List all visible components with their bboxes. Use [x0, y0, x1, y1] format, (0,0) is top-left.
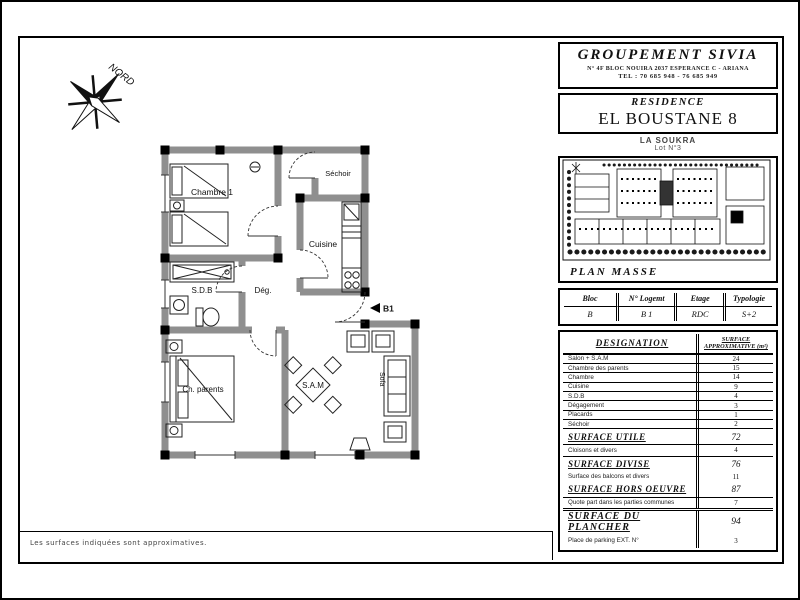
company-name: GROUPEMENT SIVIA — [560, 47, 776, 64]
surface-summary-row: SURFACE UTILE72 — [563, 429, 773, 445]
unit-value-logement: B 1 — [616, 307, 674, 322]
armchair-icon — [372, 331, 394, 352]
row-label: S.D.B — [563, 393, 696, 400]
row-label: Salon + S.A.M — [563, 355, 696, 362]
tv-icon — [350, 438, 370, 450]
surface-row: Cuisine9 — [563, 383, 773, 392]
unit-value-bloc: B — [564, 307, 616, 322]
surface-col-designation: DESIGNATION — [563, 338, 696, 348]
row-value: 2 — [696, 420, 773, 428]
room-label-ch-parents: Ch. parents — [182, 385, 223, 394]
row-value: 7 — [696, 498, 773, 508]
plan-masse-block: PLAN MASSE — [558, 156, 778, 283]
row-value: 94 — [696, 511, 773, 533]
company-phone: TEL : 70 685 948 - 76 685 949 — [560, 73, 776, 80]
unit-value-typologie: S+2 — [723, 307, 772, 322]
toilet-icon — [196, 308, 219, 326]
surface-summary-row: Cloisons et divers4 — [563, 445, 773, 456]
row-value: 1 — [696, 411, 773, 419]
row-value: 14 — [696, 373, 773, 381]
unit-header-typologie: Typologie — [723, 293, 772, 307]
location-block: LA SOUKRA Lot N°3 — [558, 136, 778, 152]
row-label: Chambre des parents — [563, 365, 696, 372]
row-label: Dégagement — [563, 402, 696, 409]
row-value: 11 — [696, 471, 773, 481]
surface-row: Chambre14 — [563, 373, 773, 382]
row-value: 4 — [696, 392, 773, 400]
room-label-sam: S.A.M — [302, 381, 324, 390]
row-value: 15 — [696, 364, 773, 372]
washbasin-icon — [170, 296, 188, 314]
drawing-sheet: NORD — [0, 0, 800, 600]
surface-row: S.D.B4 — [563, 392, 773, 401]
unit-value-etage: RDC — [674, 307, 723, 322]
room-label-sechoir: Séchoir — [325, 169, 351, 178]
residence-kicker: RESIDENCE — [560, 97, 776, 108]
row-label: SURFACE DIVISE — [563, 459, 696, 469]
row-value: 76 — [696, 457, 773, 472]
row-label: Placards — [563, 411, 696, 418]
row-label: Place de parking EXT. N° — [563, 537, 696, 544]
room-label-degagement: Dég. — [255, 286, 272, 295]
surface-row: Placards1 — [563, 411, 773, 420]
row-label: Quote part dans les parties communes — [563, 499, 696, 506]
surface-row: Chambre des parents15 — [563, 364, 773, 373]
surface-summary-row: SURFACE HORS OEUVRE87 — [563, 482, 773, 498]
entrance-label: B1 — [383, 304, 394, 314]
kitchen-counter-icon — [342, 202, 361, 292]
room-label-sofa: Sofa — [378, 372, 385, 387]
surface-row: Séchoir2 — [563, 420, 773, 429]
location-name: LA SOUKRA — [558, 136, 778, 145]
unit-info-table: Bloc N° Logemt Etage Typologie B B 1 RDC… — [558, 288, 778, 326]
entrance-arrow-icon — [370, 303, 380, 313]
surface-row: Dégagement3 — [563, 401, 773, 410]
row-label: Surface des balcons et divers — [563, 473, 696, 480]
surface-table-header: DESIGNATION SURFACE APPROXIMATIVE (m²) — [563, 334, 773, 355]
row-label: SURFACE HORS OEUVRE — [563, 484, 696, 494]
entrance-marker: B1 — [370, 303, 394, 314]
unit-header-bloc: Bloc — [564, 293, 616, 307]
surface-parking-row: Place de parking EXT. N°3 — [563, 533, 773, 548]
unit-header-etage: Etage — [674, 293, 723, 307]
twin-bed-icon — [170, 212, 228, 246]
room-label-cuisine: Cuisine — [309, 239, 338, 249]
surface-table: DESIGNATION SURFACE APPROXIMATIVE (m²) S… — [558, 330, 778, 552]
lot-number: Lot N°3 — [558, 145, 778, 152]
footnote-divider — [18, 531, 552, 532]
company-address: N° 4F BLOC NOUIRA 2037 ESPERANCE C - ARI… — [560, 66, 776, 72]
row-label: SURFACE UTILE — [563, 432, 696, 442]
site-plan — [560, 158, 774, 264]
armchair-icon — [347, 331, 369, 352]
row-label: Cuisine — [563, 383, 696, 390]
surface-summary-row: SURFACE DIVISE76 — [563, 457, 773, 472]
surface-summary-row: Surface des balcons et divers11 — [563, 471, 773, 481]
row-value: 24 — [696, 355, 773, 363]
plan-masse-label: PLAN MASSE — [570, 266, 658, 278]
door-swings — [216, 152, 365, 356]
company-block: GROUPEMENT SIVIA N° 4F BLOC NOUIRA 2037 … — [558, 42, 778, 89]
row-value: 4 — [696, 445, 773, 455]
nightstand-icon — [170, 200, 184, 211]
row-value: 3 — [696, 401, 773, 409]
room-label-chambre1: Chambre 1 — [191, 187, 233, 197]
surface-floor-row: SURFACE DU PLANCHER94 — [563, 511, 773, 533]
room-label-sdb: S.D.B — [192, 286, 213, 295]
surface-row: Salon + S.A.M24 — [563, 355, 773, 364]
unit-header-logement: N° Logemt — [616, 293, 674, 307]
footnote-divider-vertical — [552, 531, 553, 560]
row-value: 72 — [696, 429, 773, 444]
residence-name: EL BOUSTANE 8 — [560, 109, 776, 129]
row-label: SURFACE DU PLANCHER — [563, 511, 696, 533]
row-value: 87 — [696, 482, 773, 497]
sofa-icon — [384, 356, 410, 416]
row-value: 9 — [696, 383, 773, 391]
surface-summary-row: Quote part dans les parties communes7 — [563, 498, 773, 511]
bathtub-icon — [170, 262, 234, 282]
surface-col-surface: SURFACE APPROXIMATIVE (m²) — [696, 334, 773, 353]
row-label: Séchoir — [563, 421, 696, 428]
residence-block: RESIDENCE EL BOUSTANE 8 — [558, 93, 778, 134]
north-arrow-icon: NORD — [47, 54, 142, 150]
row-label: Cloisons et divers — [563, 447, 696, 454]
floor-plan: NORD — [20, 40, 550, 530]
side-table-icon — [384, 422, 406, 442]
row-label: Chambre — [563, 374, 696, 381]
footnote-text: Les surfaces indiquées sont approximativ… — [30, 539, 207, 547]
windows — [161, 175, 355, 459]
row-value: 3 — [696, 533, 773, 548]
